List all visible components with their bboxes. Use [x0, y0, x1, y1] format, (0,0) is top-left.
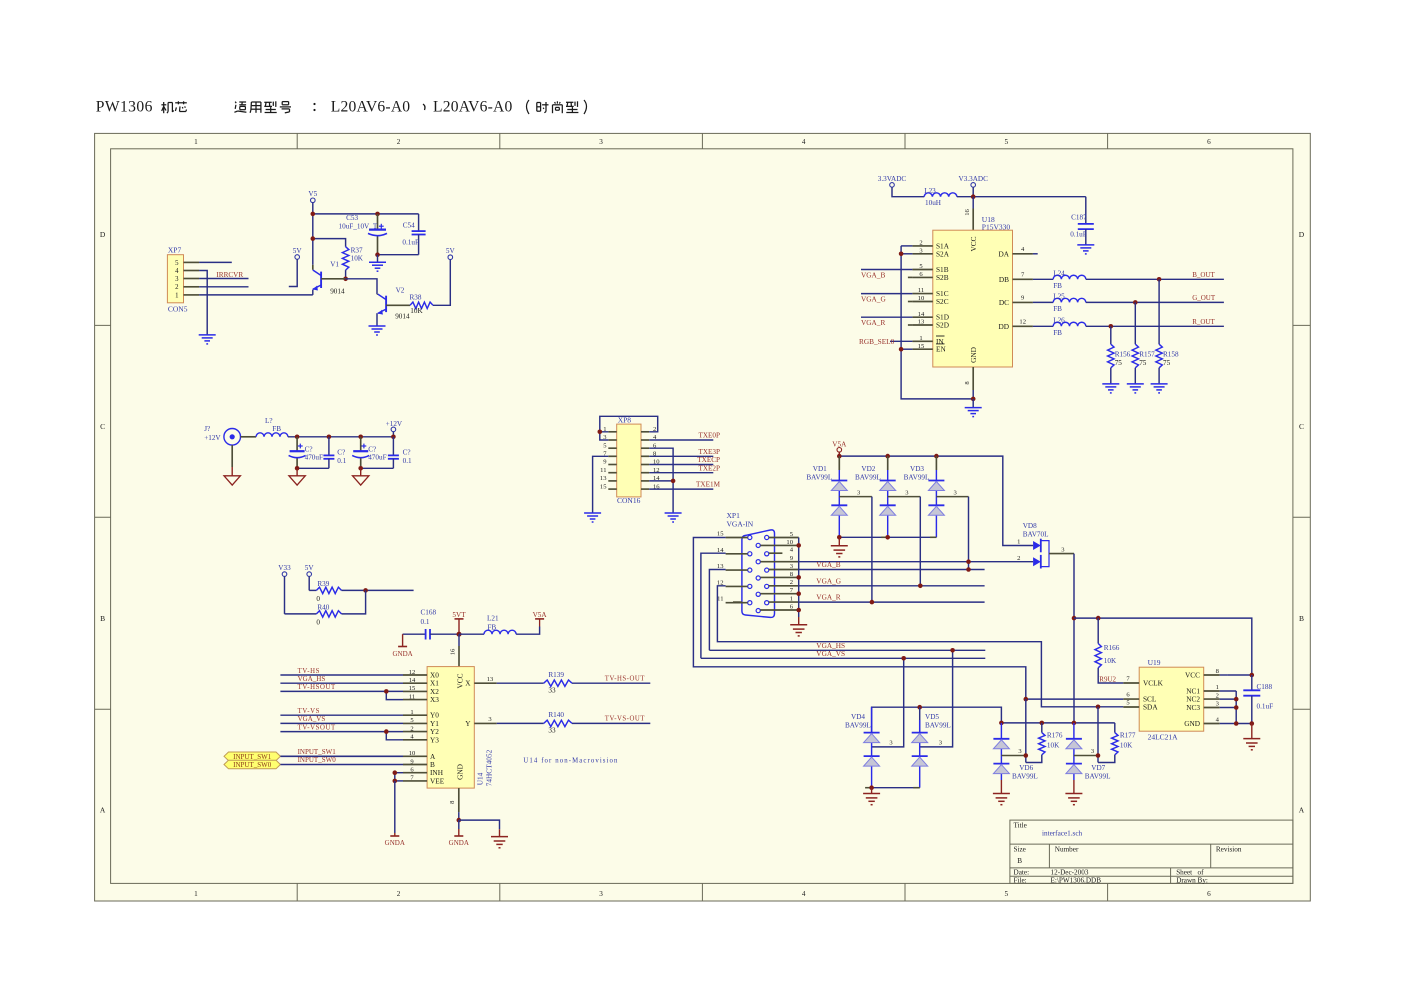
svg-text:1: 1 [919, 335, 922, 342]
svg-text:VGA_VS: VGA_VS [816, 649, 845, 658]
svg-text:VCC: VCC [455, 673, 464, 688]
svg-text:R166: R166 [1104, 644, 1120, 652]
svg-text:C?: C? [368, 445, 376, 453]
svg-text:C: C [1299, 422, 1304, 431]
svg-text:4: 4 [802, 138, 806, 146]
svg-text:L26: L26 [1053, 316, 1065, 324]
svg-text:74HCT4052: 74HCT4052 [485, 749, 494, 786]
svg-text:VEE: VEE [430, 776, 445, 785]
svg-text:V1: V1 [330, 261, 339, 269]
svg-text:C?: C? [305, 445, 313, 453]
svg-text:4: 4 [802, 890, 806, 898]
svg-text:V3.3ADC: V3.3ADC [959, 175, 989, 183]
svg-text:9014: 9014 [395, 313, 410, 321]
svg-text:3: 3 [599, 138, 603, 146]
svg-text:BAV99L: BAV99L [904, 474, 930, 482]
svg-text:R40: R40 [317, 604, 329, 612]
svg-text:15: 15 [918, 343, 925, 350]
svg-text:0: 0 [316, 618, 320, 626]
svg-text:V2: V2 [396, 287, 405, 295]
svg-text:BAV99L: BAV99L [806, 474, 832, 482]
svg-text:11: 11 [409, 693, 415, 700]
svg-text:INPUT_SW0: INPUT_SW0 [298, 756, 337, 764]
svg-text:INPUT_SW1: INPUT_SW1 [298, 748, 337, 756]
svg-text:VGA_R: VGA_R [861, 318, 885, 327]
svg-text:G_OUT: G_OUT [1192, 294, 1216, 302]
svg-text:B_OUT: B_OUT [1192, 271, 1215, 279]
svg-text:FB: FB [1053, 305, 1062, 313]
svg-text:NC3: NC3 [1186, 703, 1200, 712]
svg-text:V5: V5 [308, 190, 317, 198]
svg-text:33: 33 [548, 727, 556, 735]
svg-text:L24: L24 [1053, 269, 1065, 277]
svg-text:BAV70L: BAV70L [1023, 531, 1049, 539]
svg-text:0.1: 0.1 [337, 457, 346, 465]
svg-text:TV-HSOUT: TV-HSOUT [298, 684, 336, 691]
svg-text:V5A: V5A [533, 611, 548, 619]
svg-text:R38: R38 [410, 293, 422, 301]
svg-text:2: 2 [919, 240, 922, 247]
svg-text:C187: C187 [1071, 214, 1087, 222]
svg-text:L23: L23 [924, 187, 936, 195]
svg-text:C?: C? [337, 448, 345, 456]
svg-text:E:\PW1306.DDB: E:\PW1306.DDB [1051, 876, 1102, 884]
svg-text:B: B [1299, 614, 1304, 623]
svg-text:75: 75 [1139, 359, 1147, 367]
svg-text:10K: 10K [1120, 742, 1133, 750]
svg-text:10K: 10K [1104, 657, 1117, 665]
svg-text:GNDA: GNDA [449, 839, 469, 847]
svg-text:0.1uF: 0.1uF [402, 238, 419, 246]
svg-text:Date:: Date: [1014, 868, 1030, 876]
svg-text:GND: GND [969, 347, 978, 363]
svg-text:VGA_HS: VGA_HS [298, 675, 326, 683]
svg-text:U14 for non-Macrovision: U14 for non-Macrovision [523, 758, 618, 765]
svg-text:5V: 5V [293, 247, 303, 255]
svg-text:BAV99L: BAV99L [845, 722, 871, 730]
svg-text:13: 13 [487, 676, 494, 683]
svg-text:VGA_R: VGA_R [816, 593, 840, 602]
svg-text:R9U2: R9U2 [1099, 675, 1116, 683]
svg-text:GNDA: GNDA [392, 650, 412, 658]
svg-text:C: C [100, 422, 105, 431]
svg-text:VD6: VD6 [1019, 764, 1033, 772]
svg-text:11: 11 [918, 287, 924, 294]
svg-text:BAV99L: BAV99L [1012, 773, 1038, 781]
svg-text:XP7: XP7 [168, 246, 182, 255]
svg-text:A: A [1299, 806, 1305, 815]
svg-text:10uF_10V_T: 10uF_10V_T [339, 222, 378, 230]
svg-text:10: 10 [786, 539, 793, 546]
svg-text:U14: U14 [476, 772, 485, 785]
svg-text:TXECP: TXECP [697, 456, 720, 464]
svg-text:A: A [100, 806, 106, 815]
svg-text:16: 16 [964, 209, 971, 216]
svg-text:12-Dec-2003: 12-Dec-2003 [1051, 868, 1089, 876]
svg-text:TV-HS-OUT: TV-HS-OUT [605, 676, 645, 683]
svg-text:D: D [1299, 230, 1305, 239]
svg-text:TV-HS: TV-HS [298, 668, 320, 675]
svg-text:10K: 10K [1047, 742, 1060, 750]
svg-text:0.1: 0.1 [403, 457, 412, 465]
svg-text:5: 5 [175, 260, 179, 267]
svg-text:RGB_SEL0: RGB_SEL0 [859, 337, 895, 346]
svg-text:TV-VSOUT: TV-VSOUT [298, 724, 336, 731]
svg-text:Y3: Y3 [430, 735, 439, 744]
svg-text:FB: FB [487, 624, 496, 632]
svg-text:DA: DA [998, 249, 1009, 258]
svg-text:B: B [100, 614, 105, 623]
svg-text:3.3VADC: 3.3VADC [878, 175, 907, 183]
svg-text:VGA_B: VGA_B [861, 270, 885, 279]
svg-text:interface1.sch: interface1.sch [1042, 829, 1083, 837]
svg-text:10: 10 [918, 295, 925, 302]
svg-text:Size: Size [1014, 845, 1026, 853]
svg-text:U19: U19 [1148, 658, 1161, 667]
svg-text:R37: R37 [351, 247, 363, 255]
svg-text:15: 15 [409, 685, 416, 692]
svg-text:TXE0P: TXE0P [698, 432, 720, 440]
svg-text:13: 13 [918, 319, 925, 326]
svg-text:VD2: VD2 [861, 465, 875, 473]
svg-text:0.1uF: 0.1uF [1257, 703, 1274, 711]
svg-text:14: 14 [409, 677, 416, 684]
svg-text:X3: X3 [430, 695, 439, 704]
svg-text:12: 12 [409, 669, 416, 676]
svg-text:BAV99L: BAV99L [855, 474, 881, 482]
svg-text:SDA: SDA [1143, 703, 1158, 712]
svg-text:5V: 5V [305, 564, 315, 572]
svg-text:10K: 10K [351, 254, 364, 262]
svg-text:VCC: VCC [969, 236, 978, 251]
svg-text:FB: FB [272, 425, 281, 433]
svg-text:10K: 10K [410, 307, 423, 315]
svg-text:R39: R39 [317, 580, 329, 588]
svg-text:INPUT_SW1: INPUT_SW1 [233, 753, 272, 761]
svg-text:11: 11 [600, 467, 606, 474]
svg-text:L20AV6-A0: L20AV6-A0 [331, 99, 410, 116]
svg-text:15: 15 [717, 531, 724, 538]
svg-text:C168: C168 [421, 609, 437, 617]
svg-text:1: 1 [194, 138, 198, 146]
svg-text:24LC21A: 24LC21A [1148, 733, 1179, 742]
svg-text:TXE3P: TXE3P [698, 448, 720, 456]
svg-text:DC: DC [999, 298, 1009, 307]
svg-text:2: 2 [790, 579, 793, 586]
svg-text:BAV99L: BAV99L [1085, 773, 1111, 781]
svg-text:2: 2 [397, 138, 401, 146]
svg-text:R156: R156 [1115, 351, 1131, 359]
svg-text:VD8: VD8 [1023, 522, 1037, 530]
svg-text:C54: C54 [403, 221, 415, 229]
svg-text:3: 3 [599, 890, 603, 898]
svg-text:Title: Title [1014, 821, 1027, 829]
svg-text:CON16: CON16 [617, 496, 641, 505]
svg-text:0.1: 0.1 [421, 618, 430, 626]
svg-text:TV-VS: TV-VS [298, 708, 320, 715]
svg-text:+12V: +12V [386, 420, 403, 428]
svg-text:L20AV6-A0: L20AV6-A0 [433, 99, 512, 116]
svg-text:16: 16 [450, 648, 457, 655]
svg-text:2: 2 [1017, 555, 1020, 562]
svg-text:BAV99L: BAV99L [925, 722, 951, 730]
svg-text:2: 2 [175, 284, 179, 291]
svg-text:IRRCVR: IRRCVR [216, 271, 243, 279]
svg-text:5V: 5V [446, 247, 456, 255]
svg-text:S2A: S2A [936, 249, 950, 258]
svg-text:C?: C? [403, 448, 411, 456]
svg-text:R139: R139 [548, 671, 564, 679]
svg-text:+12V: +12V [204, 434, 221, 442]
svg-text:VGA-IN: VGA-IN [727, 519, 754, 528]
svg-text:5: 5 [1005, 890, 1009, 898]
svg-text:PW1306: PW1306 [96, 99, 153, 116]
svg-text:Revision: Revision [1216, 845, 1242, 853]
svg-text:1: 1 [790, 596, 793, 603]
svg-text:Number: Number [1055, 845, 1079, 853]
svg-text:3: 3 [175, 276, 179, 283]
svg-text:C188: C188 [1257, 683, 1273, 691]
svg-text:FB: FB [1053, 329, 1062, 337]
svg-text:D: D [100, 230, 106, 239]
svg-text:2: 2 [410, 725, 413, 732]
svg-text:13: 13 [600, 475, 607, 482]
svg-text:VCC: VCC [1185, 671, 1200, 680]
svg-text:GNDA: GNDA [385, 839, 405, 847]
svg-text:1: 1 [194, 890, 198, 898]
svg-text:S2C: S2C [936, 297, 949, 306]
svg-text:VGA_G: VGA_G [861, 294, 886, 303]
svg-text:TXE2P: TXE2P [698, 464, 720, 472]
svg-text:6: 6 [1207, 138, 1211, 146]
svg-text:INPUT_SW0: INPUT_SW0 [233, 761, 272, 769]
svg-text:R157: R157 [1139, 351, 1155, 359]
svg-text:CON5: CON5 [168, 304, 188, 313]
svg-text:12: 12 [1019, 319, 1026, 326]
svg-text:EN: EN [936, 345, 946, 354]
svg-text:P15V330: P15V330 [982, 222, 1011, 231]
svg-text:33: 33 [548, 687, 556, 695]
svg-text:14: 14 [918, 311, 925, 318]
svg-text:4: 4 [175, 268, 179, 275]
svg-text:J?: J? [204, 425, 210, 433]
svg-text:R176: R176 [1047, 732, 1063, 740]
svg-text:0.1uF: 0.1uF [1070, 231, 1087, 239]
svg-text:R_OUT: R_OUT [1192, 318, 1215, 326]
svg-text:0: 0 [316, 595, 320, 603]
svg-text:S2D: S2D [936, 321, 949, 330]
svg-text:Drawn By:: Drawn By: [1176, 876, 1208, 884]
svg-text:75: 75 [1115, 359, 1123, 367]
svg-text:VGA_VS: VGA_VS [298, 715, 326, 723]
svg-text:DD: DD [998, 322, 1009, 331]
svg-text:VD4: VD4 [851, 713, 865, 721]
svg-text:S2B: S2B [936, 273, 949, 282]
svg-text:75: 75 [1163, 359, 1171, 367]
svg-text:File:: File: [1014, 876, 1027, 884]
svg-text:Y: Y [465, 719, 471, 728]
svg-text:R158: R158 [1163, 351, 1179, 359]
svg-text:10: 10 [409, 750, 416, 757]
svg-text:V33: V33 [278, 564, 291, 572]
svg-text:1: 1 [175, 292, 178, 299]
svg-text:5VT: 5VT [452, 611, 466, 619]
svg-text:L25: L25 [1053, 293, 1065, 301]
svg-text:X: X [465, 679, 471, 688]
svg-text:VGA_G: VGA_G [816, 576, 841, 585]
svg-text:9014: 9014 [330, 288, 345, 296]
svg-text:FB: FB [1053, 282, 1062, 290]
svg-text:2: 2 [397, 890, 401, 898]
svg-text:10uH: 10uH [925, 199, 941, 207]
svg-text:1: 1 [1216, 684, 1219, 691]
svg-text:R140: R140 [548, 711, 564, 719]
svg-text:VD1: VD1 [813, 465, 827, 473]
svg-text:C53: C53 [346, 214, 358, 222]
svg-text:VD7: VD7 [1091, 764, 1105, 772]
svg-text:2: 2 [1216, 692, 1219, 699]
svg-text:DB: DB [999, 275, 1009, 284]
svg-text:VGA_B: VGA_B [816, 560, 840, 569]
svg-text:VD3: VD3 [910, 465, 924, 473]
svg-text:Sheet: Sheet [1176, 868, 1192, 876]
svg-text:GND: GND [455, 764, 464, 780]
svg-text:VCLK: VCLK [1143, 679, 1164, 688]
svg-text:15: 15 [600, 483, 607, 490]
svg-text:L21: L21 [487, 614, 499, 622]
svg-text:5: 5 [1005, 138, 1009, 146]
svg-text:470uF: 470uF [305, 453, 323, 461]
svg-text:of: of [1198, 868, 1205, 876]
svg-text:TV-VS-OUT: TV-VS-OUT [605, 716, 645, 723]
svg-text:6: 6 [1207, 890, 1211, 898]
svg-text:GND: GND [1184, 719, 1200, 728]
svg-text:1: 1 [410, 709, 413, 716]
svg-text:TXE1M: TXE1M [696, 480, 721, 488]
svg-text:470uF: 470uF [368, 453, 386, 461]
svg-text:1: 1 [1017, 539, 1020, 546]
svg-text:R177: R177 [1120, 732, 1136, 740]
svg-text:B: B [1017, 857, 1022, 865]
svg-text:VD5: VD5 [925, 713, 939, 721]
